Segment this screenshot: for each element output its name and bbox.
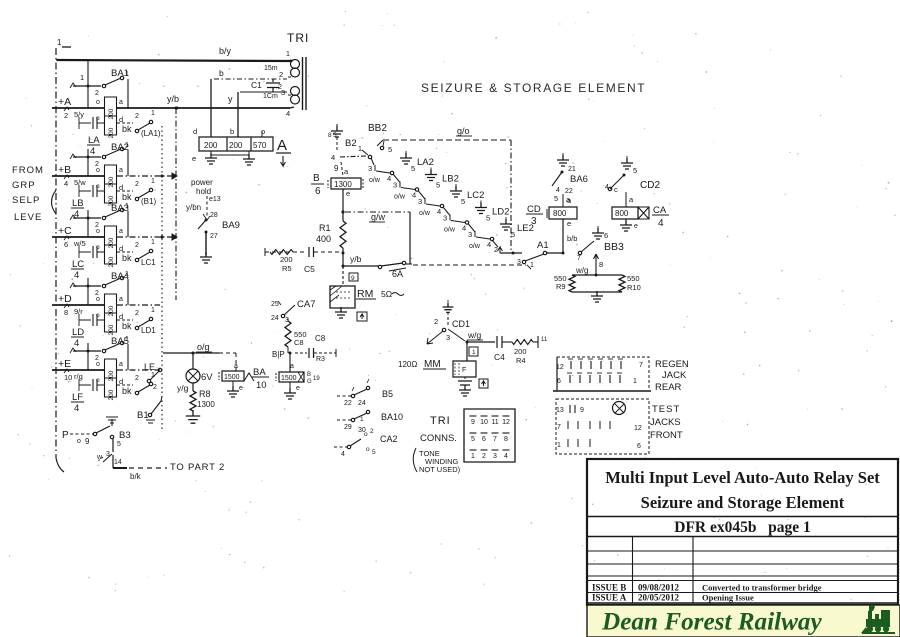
- svg-text:DFR ex045b page 1: DFR ex045b page 1: [674, 519, 810, 536]
- svg-text:o: o: [96, 99, 100, 106]
- svg-text:2: 2: [64, 111, 68, 120]
- svg-text:REGEN: REGEN: [655, 359, 689, 370]
- svg-text:SELP: SELP: [12, 195, 40, 206]
- svg-text:CD2: CD2: [640, 180, 660, 191]
- svg-text:8: 8: [64, 308, 68, 317]
- svg-text:800: 800: [615, 209, 629, 218]
- svg-text:o: o: [364, 431, 368, 438]
- svg-text:TEST: TEST: [652, 404, 680, 415]
- svg-text:b: b: [219, 68, 224, 78]
- svg-text:200: 200: [229, 141, 243, 150]
- svg-text:Seizure and Storage Element: Seizure and Storage Element: [641, 493, 845, 512]
- svg-text:12: 12: [556, 364, 564, 371]
- svg-text:o/w: o/w: [419, 210, 431, 217]
- svg-text:o/w: o/w: [444, 227, 456, 234]
- svg-text:BA6: BA6: [570, 174, 588, 185]
- svg-text:2: 2: [153, 384, 157, 391]
- svg-text:4: 4: [487, 240, 491, 249]
- svg-text:GRP: GRP: [12, 180, 36, 191]
- svg-text:e: e: [192, 154, 196, 163]
- svg-text:5: 5: [486, 214, 490, 223]
- svg-text:15m: 15m: [264, 65, 278, 72]
- svg-text:1: 1: [471, 453, 475, 460]
- svg-text:5: 5: [436, 181, 440, 190]
- svg-text:7: 7: [639, 362, 643, 369]
- svg-text:14: 14: [114, 459, 122, 466]
- svg-text:2: 2: [95, 90, 99, 97]
- svg-text:4: 4: [605, 184, 609, 191]
- svg-text:a: a: [119, 296, 123, 303]
- svg-text:o: o: [96, 167, 100, 174]
- svg-text:2: 2: [135, 375, 139, 382]
- svg-text:b/b: b/b: [567, 234, 577, 243]
- svg-text:4: 4: [412, 191, 416, 200]
- svg-text:3: 3: [468, 230, 472, 239]
- svg-text:BA10: BA10: [381, 412, 403, 422]
- svg-text:200: 200: [280, 255, 293, 264]
- svg-text:3: 3: [493, 453, 497, 460]
- svg-text:1: 1: [286, 51, 290, 58]
- svg-text:9: 9: [85, 437, 90, 446]
- svg-text:R9: R9: [556, 282, 566, 291]
- svg-text:R4: R4: [516, 356, 526, 365]
- svg-text:F: F: [462, 367, 466, 374]
- svg-text:R5: R5: [282, 264, 292, 273]
- svg-text:3: 3: [393, 181, 397, 190]
- svg-text:C4: C4: [494, 352, 505, 362]
- svg-text:TO PART 2: TO PART 2: [170, 462, 225, 473]
- svg-text:o: o: [96, 361, 100, 368]
- svg-text:FROM: FROM: [12, 165, 44, 176]
- svg-text:b/y: b/y: [219, 46, 232, 56]
- svg-text:5: 5: [372, 449, 376, 456]
- svg-text:LC: LC: [72, 259, 84, 270]
- svg-text:24: 24: [358, 400, 366, 407]
- svg-text:800: 800: [553, 209, 567, 218]
- svg-text:200: 200: [108, 176, 115, 187]
- svg-text:6: 6: [64, 240, 68, 249]
- svg-text:2: 2: [278, 84, 282, 91]
- svg-text:400: 400: [316, 234, 331, 244]
- svg-text:g/w: g/w: [371, 212, 386, 222]
- svg-text:1: 1: [530, 262, 534, 269]
- svg-text:bk: bk: [122, 321, 132, 331]
- svg-text:MM: MM: [424, 359, 441, 370]
- svg-text:CD1: CD1: [452, 319, 470, 329]
- svg-text:11: 11: [541, 337, 548, 343]
- svg-text:JACKS: JACKS: [650, 417, 681, 428]
- svg-text:LD: LD: [72, 327, 84, 338]
- svg-text:5: 5: [461, 197, 465, 206]
- svg-text:6: 6: [604, 231, 608, 240]
- svg-text:A1: A1: [537, 240, 549, 251]
- svg-text:C8: C8: [315, 334, 326, 343]
- svg-text:R8: R8: [199, 389, 211, 399]
- svg-text:550: 550: [627, 274, 640, 283]
- svg-text:FRONT: FRONT: [650, 430, 683, 441]
- svg-text:5/w: 5/w: [74, 178, 86, 187]
- svg-text:+A: +A: [58, 96, 71, 108]
- svg-text:BA3: BA3: [111, 203, 129, 214]
- svg-text:1500: 1500: [281, 375, 297, 382]
- svg-text:+E: +E: [58, 358, 71, 370]
- svg-text:B3: B3: [119, 430, 131, 441]
- svg-text:LEVE: LEVE: [14, 212, 42, 223]
- svg-text:3: 3: [531, 216, 537, 227]
- svg-text:e: e: [296, 385, 300, 392]
- svg-text:NOT USED): NOT USED): [419, 465, 461, 474]
- svg-text:4: 4: [341, 451, 345, 458]
- svg-text:200: 200: [108, 305, 115, 316]
- svg-text:Dean Forest Railway: Dean Forest Railway: [601, 609, 823, 636]
- svg-text:10: 10: [64, 373, 72, 382]
- svg-text:09/08/2012: 09/08/2012: [638, 583, 680, 593]
- svg-text:TRI: TRI: [430, 415, 451, 427]
- svg-text:B5: B5: [382, 389, 393, 399]
- svg-text:200: 200: [108, 127, 115, 138]
- svg-text:e13: e13: [209, 196, 221, 203]
- svg-text:5: 5: [411, 164, 415, 173]
- svg-text:10: 10: [480, 419, 488, 426]
- svg-text:2: 2: [370, 428, 374, 435]
- svg-text:1: 1: [472, 349, 476, 356]
- svg-text:o/w: o/w: [369, 177, 381, 184]
- svg-text:12: 12: [634, 425, 642, 432]
- svg-text:o/w: o/w: [469, 243, 481, 250]
- svg-text:B: B: [307, 372, 311, 378]
- svg-text:1: 1: [80, 73, 84, 82]
- svg-text:120Ω: 120Ω: [398, 360, 417, 369]
- svg-text:TRI: TRI: [287, 31, 309, 45]
- svg-text:a: a: [119, 361, 123, 368]
- svg-text:+D: +D: [58, 293, 72, 305]
- svg-text:9: 9: [580, 407, 584, 414]
- svg-text:a: a: [119, 228, 123, 235]
- svg-text:1: 1: [57, 38, 62, 47]
- svg-text:1: 1: [151, 307, 155, 314]
- svg-text:LE: LE: [144, 362, 155, 372]
- svg-text:3: 3: [446, 333, 450, 342]
- svg-text:4: 4: [90, 146, 95, 157]
- svg-text:200: 200: [108, 389, 115, 400]
- svg-text:y/bn: y/bn: [186, 203, 201, 212]
- svg-text:SEIZURE & STORAGE ELEMENT: SEIZURE & STORAGE ELEMENT: [421, 81, 646, 95]
- svg-text:200: 200: [108, 370, 115, 381]
- svg-text:6: 6: [482, 436, 486, 443]
- svg-text:1500: 1500: [224, 374, 240, 381]
- svg-text:REAR: REAR: [655, 382, 682, 393]
- svg-text:Opening Issue: Opening Issue: [702, 593, 754, 603]
- svg-text:+B: +B: [58, 164, 71, 176]
- svg-text:BA4: BA4: [111, 271, 129, 282]
- svg-text:LA2: LA2: [417, 157, 434, 168]
- svg-text:P: P: [62, 430, 69, 441]
- svg-text:5: 5: [554, 194, 558, 203]
- svg-text:+C: +C: [58, 225, 72, 237]
- svg-text:1300: 1300: [334, 180, 352, 189]
- svg-text:CA2: CA2: [380, 434, 398, 444]
- svg-text:8: 8: [504, 436, 508, 443]
- svg-text:3: 3: [418, 197, 422, 206]
- svg-text:13: 13: [556, 407, 564, 414]
- svg-text:y/b: y/b: [167, 94, 179, 104]
- svg-text:6: 6: [557, 378, 561, 385]
- svg-text:bk: bk: [122, 386, 132, 396]
- svg-text:25: 25: [271, 301, 279, 308]
- svg-text:Multi Input Level Auto-Auto Re: Multi Input Level Auto-Auto Relay Set: [605, 468, 880, 487]
- svg-text:e: e: [634, 223, 638, 230]
- svg-text:5: 5: [471, 436, 475, 443]
- svg-text:C5: C5: [304, 264, 315, 274]
- svg-text:1Cm: 1Cm: [263, 93, 278, 100]
- svg-text:CD: CD: [527, 204, 541, 215]
- svg-text:LC1: LC1: [141, 258, 156, 267]
- svg-text:BA9: BA9: [222, 220, 240, 231]
- svg-text:1: 1: [557, 442, 561, 449]
- svg-text:a: a: [629, 195, 634, 204]
- svg-text:200: 200: [108, 108, 115, 119]
- svg-text:21: 21: [568, 166, 576, 173]
- svg-text:BA5: BA5: [111, 336, 129, 347]
- svg-text:CA: CA: [653, 205, 667, 216]
- svg-text:4: 4: [462, 224, 466, 233]
- svg-text:B: B: [313, 173, 320, 184]
- svg-text:2: 2: [279, 70, 283, 79]
- svg-text:200: 200: [108, 256, 115, 267]
- svg-text:e: e: [239, 385, 243, 392]
- svg-text:20/05/2012: 20/05/2012: [638, 593, 680, 603]
- svg-text:3: 3: [368, 164, 372, 173]
- svg-text:B1: B1: [137, 410, 149, 421]
- svg-text:a: a: [119, 99, 123, 106]
- svg-text:4: 4: [387, 174, 391, 183]
- svg-text:C8: C8: [294, 338, 304, 347]
- svg-text:y/g: y/g: [177, 383, 189, 393]
- svg-text:4: 4: [331, 153, 335, 162]
- svg-text:c: c: [614, 185, 618, 194]
- svg-text:22: 22: [565, 188, 573, 195]
- svg-text:r/g: r/g: [74, 372, 83, 381]
- svg-text:4: 4: [286, 109, 290, 118]
- svg-text:2: 2: [135, 242, 139, 249]
- svg-text:a: a: [344, 167, 349, 176]
- svg-text:19: 19: [313, 376, 320, 382]
- svg-text:CA7: CA7: [297, 299, 315, 310]
- svg-text:5Ω: 5Ω: [381, 289, 392, 299]
- svg-text:BB3: BB3: [604, 241, 624, 253]
- svg-text:4: 4: [74, 403, 79, 414]
- svg-text:200: 200: [204, 141, 218, 150]
- svg-text:5: 5: [511, 230, 515, 239]
- svg-text:5: 5: [333, 132, 337, 139]
- svg-text:7: 7: [577, 255, 581, 262]
- svg-text:4: 4: [658, 218, 664, 229]
- svg-text:o: o: [96, 228, 100, 235]
- svg-text:w/g: w/g: [467, 330, 482, 340]
- svg-text:A: A: [277, 137, 287, 154]
- svg-text:4: 4: [74, 338, 79, 349]
- svg-text:ISSUE A: ISSUE A: [592, 593, 627, 603]
- svg-text:(LA1): (LA1): [141, 129, 161, 138]
- svg-text:1: 1: [360, 416, 364, 423]
- svg-text:2: 2: [494, 247, 498, 254]
- svg-text:B|P: B|P: [272, 350, 285, 359]
- svg-text:27: 27: [210, 233, 218, 240]
- svg-text:570: 570: [253, 141, 267, 150]
- svg-text:o/g: o/g: [197, 342, 210, 352]
- svg-text:9: 9: [471, 419, 475, 426]
- svg-text:LB2: LB2: [442, 174, 459, 185]
- svg-text:200: 200: [108, 324, 115, 335]
- svg-text:6: 6: [637, 443, 641, 450]
- svg-text:R10: R10: [627, 283, 641, 292]
- svg-text:2: 2: [434, 317, 438, 326]
- svg-text:bk: bk: [122, 192, 132, 202]
- svg-text:12: 12: [502, 419, 510, 426]
- svg-text:24: 24: [271, 315, 279, 322]
- svg-text:Converted to transformer bridg: Converted to transformer bridge: [702, 583, 822, 593]
- svg-text:LC2: LC2: [467, 190, 484, 201]
- svg-text:o/w: o/w: [394, 194, 406, 201]
- svg-text:ISSUE B: ISSUE B: [592, 583, 626, 593]
- svg-text:1: 1: [358, 146, 362, 153]
- svg-text:22: 22: [344, 400, 352, 407]
- svg-text:1: 1: [151, 110, 155, 117]
- svg-text:R3: R3: [316, 356, 325, 363]
- svg-text:R1: R1: [319, 223, 331, 233]
- svg-text:o: o: [366, 446, 370, 453]
- svg-text:g/o: g/o: [457, 126, 470, 136]
- svg-text:8: 8: [328, 132, 332, 139]
- svg-text:b: b: [230, 127, 234, 136]
- svg-text:a: a: [567, 196, 572, 205]
- svg-text:5: 5: [388, 145, 392, 154]
- svg-text:2: 2: [482, 453, 486, 460]
- svg-text:CONNS.: CONNS.: [420, 433, 457, 444]
- svg-text:5: 5: [633, 166, 637, 175]
- svg-text:29: 29: [344, 424, 352, 431]
- svg-text:28: 28: [210, 212, 218, 219]
- svg-text:LA: LA: [88, 135, 100, 146]
- svg-text:hold: hold: [196, 187, 211, 196]
- svg-text:bk: bk: [122, 253, 132, 263]
- svg-text:BA1: BA1: [111, 68, 129, 79]
- svg-text:2: 2: [135, 113, 139, 120]
- svg-text:BA2: BA2: [111, 142, 129, 153]
- svg-text:y/b: y/b: [350, 254, 362, 264]
- svg-text:6: 6: [315, 186, 321, 197]
- svg-text:9: 9: [334, 164, 339, 173]
- svg-text:a: a: [119, 167, 123, 174]
- svg-text:4: 4: [504, 453, 508, 460]
- svg-text:G: G: [307, 379, 312, 385]
- svg-text:w/g: w/g: [575, 266, 588, 275]
- svg-text:9: 9: [351, 275, 355, 282]
- svg-text:a: a: [234, 363, 238, 370]
- svg-text:11: 11: [491, 419, 498, 426]
- svg-text:200: 200: [108, 237, 115, 248]
- svg-text:o: o: [96, 296, 100, 303]
- svg-text:(B1): (B1): [141, 197, 156, 206]
- svg-text:3: 3: [517, 259, 521, 266]
- svg-text:3: 3: [443, 214, 447, 223]
- svg-text:power: power: [191, 178, 213, 187]
- svg-text:d: d: [193, 127, 197, 136]
- svg-text:4: 4: [64, 179, 68, 188]
- svg-text:LB: LB: [72, 198, 84, 209]
- svg-text:1300: 1300: [197, 400, 215, 409]
- svg-text:1: 1: [633, 378, 637, 385]
- svg-text:RM: RM: [357, 288, 373, 300]
- svg-text:y: y: [228, 94, 233, 104]
- svg-text:b/k: b/k: [130, 472, 142, 481]
- svg-text:6V: 6V: [201, 372, 213, 383]
- svg-text:C1: C1: [251, 80, 262, 90]
- svg-text:200: 200: [514, 347, 527, 356]
- svg-text:2: 2: [135, 310, 139, 317]
- svg-text:5: 5: [117, 441, 121, 448]
- svg-text:7: 7: [493, 436, 497, 443]
- svg-text:a: a: [290, 363, 294, 370]
- svg-text:BA: BA: [253, 367, 266, 378]
- svg-text:1: 1: [151, 178, 155, 185]
- svg-text:JACK: JACK: [662, 370, 687, 381]
- svg-text:o: o: [77, 438, 81, 445]
- svg-text:4: 4: [556, 187, 560, 194]
- svg-text:2: 2: [135, 181, 139, 188]
- svg-text:B2: B2: [345, 138, 357, 149]
- svg-text:4: 4: [437, 207, 441, 216]
- svg-text:e: e: [346, 189, 350, 198]
- svg-text:7: 7: [557, 424, 561, 431]
- svg-text:10: 10: [256, 380, 267, 391]
- svg-text:LD2: LD2: [492, 207, 509, 218]
- svg-text:bk: bk: [122, 124, 132, 134]
- svg-text:BB2: BB2: [368, 123, 387, 134]
- svg-text:LF: LF: [72, 392, 83, 403]
- svg-text:1: 1: [151, 239, 155, 246]
- svg-text:e: e: [567, 219, 571, 228]
- svg-text:8: 8: [599, 260, 603, 269]
- svg-text:4: 4: [74, 270, 79, 281]
